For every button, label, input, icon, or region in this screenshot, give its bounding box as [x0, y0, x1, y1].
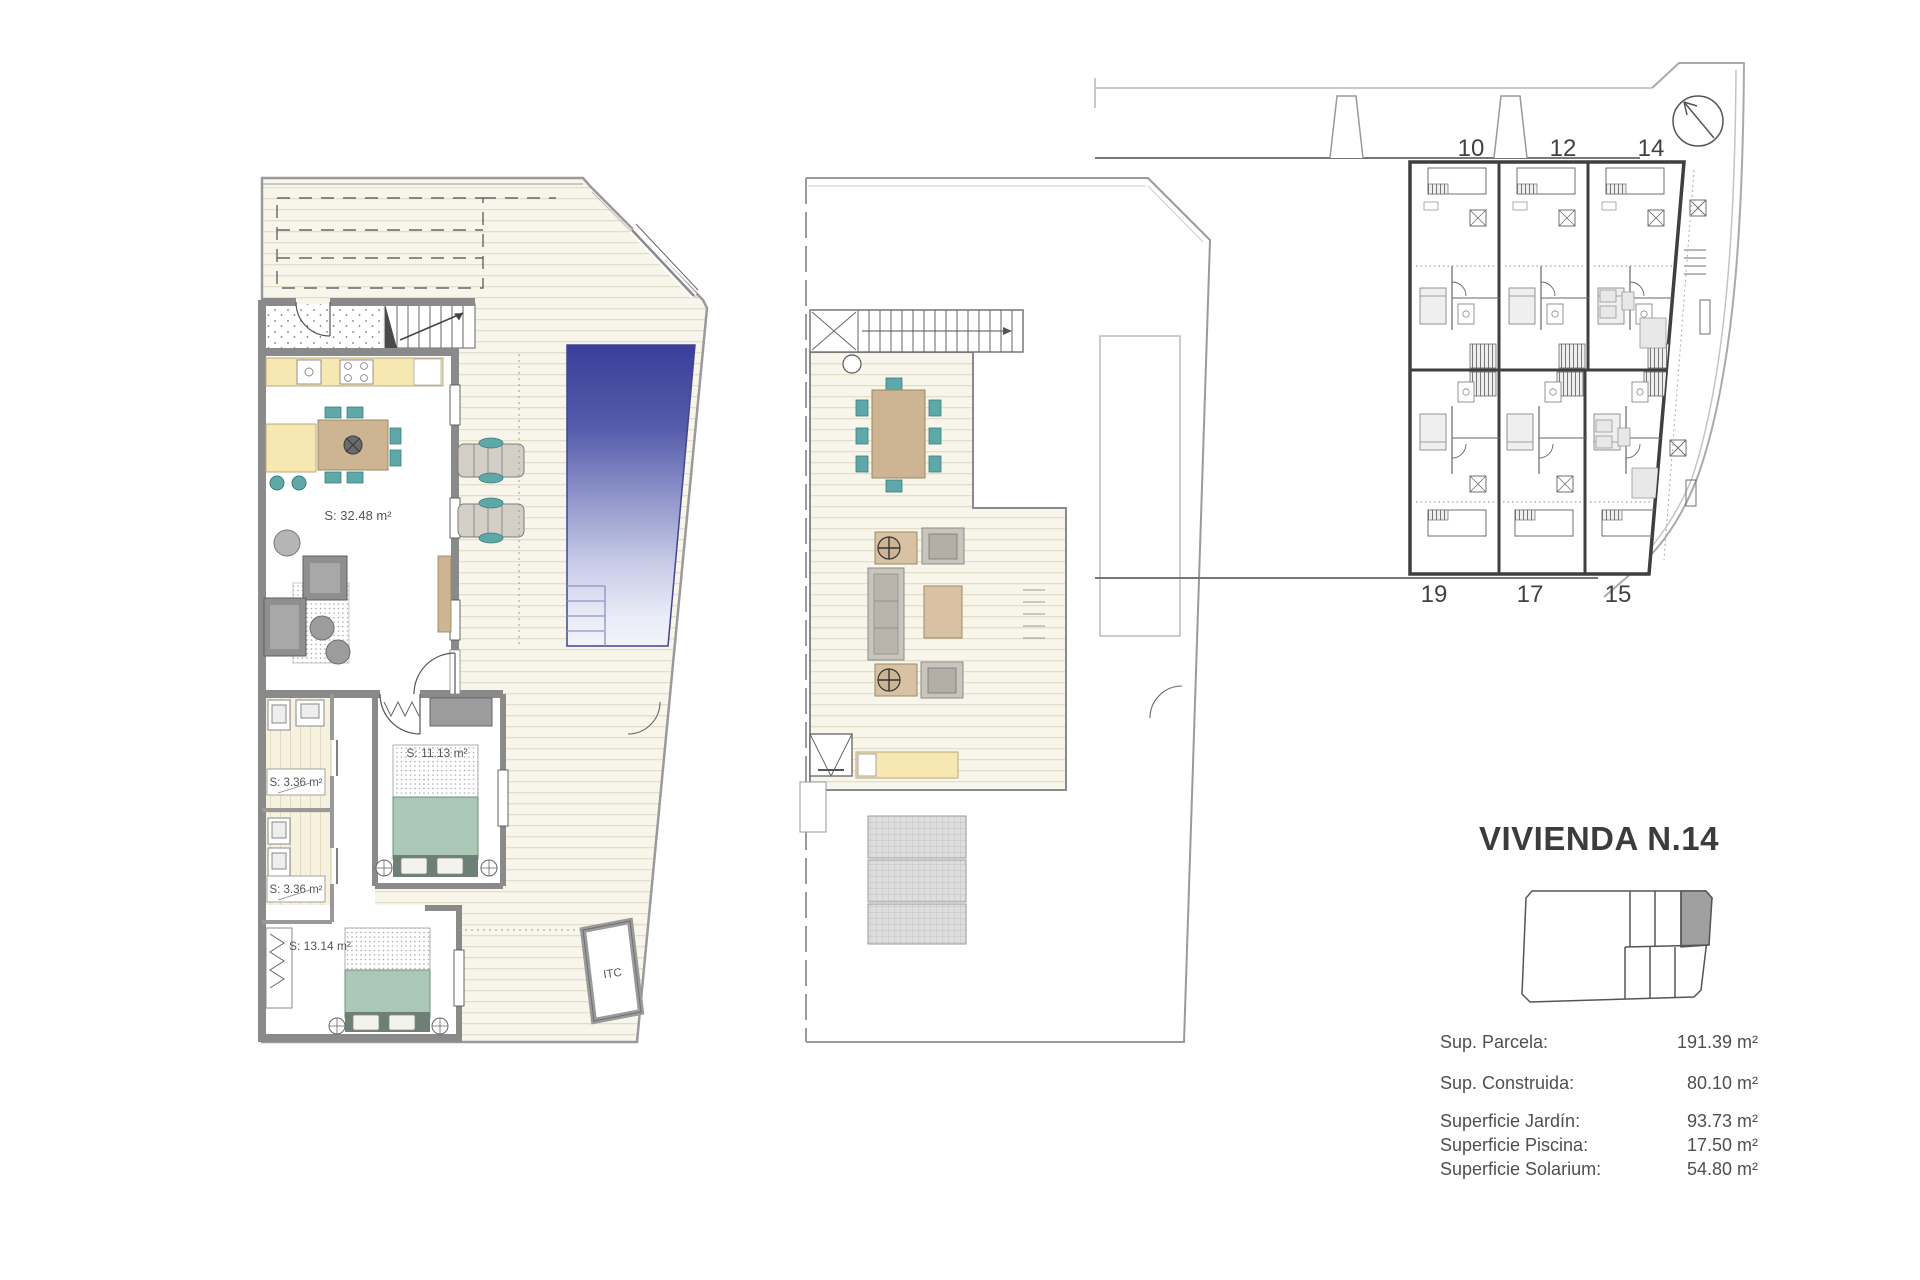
spec-value: 54.80 m²	[1687, 1157, 1758, 1181]
blueprint-page: ITC S: 32.48 m² S: 3.36 m² S: 3.36 m² S:…	[0, 0, 1920, 1280]
spec-value: 191.39 m²	[1677, 1030, 1758, 1054]
ground-floor-plan: ITC S: 32.48 m² S: 3.36 m² S: 3.36 m² S:…	[262, 178, 707, 1042]
spec-row-construida: Sup. Construida: 80.10 m²	[1440, 1071, 1758, 1095]
spec-value: 93.73 m²	[1687, 1109, 1758, 1133]
solar-pergola	[868, 816, 966, 944]
spec-value: 17.50 m²	[1687, 1133, 1758, 1157]
roof-bench	[856, 752, 958, 778]
spec-row-parcela: Sup. Parcela: 191.39 m²	[1440, 1030, 1758, 1054]
side-table	[274, 530, 300, 556]
stool	[292, 476, 306, 490]
stove	[340, 360, 373, 384]
bath1-label: S: 3.36 m²	[267, 769, 325, 795]
entry-stairs	[385, 304, 475, 348]
living-area-label: S: 32.48 m²	[324, 508, 392, 523]
itc-room: ITC	[583, 921, 641, 1021]
unit-number-17: 17	[1517, 581, 1544, 608]
compass-icon	[1673, 96, 1723, 146]
unit-number-14: 14	[1638, 135, 1665, 162]
spec-list: Sup. Parcela: 191.39 m² Sup. Construida:…	[1440, 1030, 1758, 1181]
bedroom2-area-label: S: 13.14 m²	[289, 939, 351, 953]
spec-row-piscina: Superficie Piscina: 17.50 m²	[1440, 1133, 1758, 1157]
spec-label: Sup. Parcela:	[1440, 1030, 1548, 1054]
kitchen-island	[266, 424, 316, 472]
roof-shower	[810, 734, 852, 776]
bedroom1-area-label: S: 11.13 m²	[406, 746, 467, 760]
building-block	[1410, 162, 1684, 574]
unit-number-12: 12	[1550, 135, 1577, 162]
unit-number-19: 19	[1421, 581, 1448, 608]
hallway	[332, 694, 375, 922]
sideboard	[438, 556, 451, 632]
sink	[297, 360, 321, 384]
coffee-table	[924, 586, 962, 638]
spec-row-solarium: Superficie Solarium: 54.80 m²	[1440, 1157, 1758, 1181]
spec-label: Superficie Solarium:	[1440, 1157, 1601, 1181]
spec-label: Sup. Construida:	[1440, 1071, 1574, 1095]
closet-1	[430, 698, 492, 726]
spec-label: Superficie Jardín:	[1440, 1109, 1580, 1133]
unit-number-10: 10	[1458, 135, 1485, 162]
info-panel: VIVIENDA N.14 Sup. Parcela: 191.39 m² Su…	[1440, 820, 1758, 1181]
unit-number-15: 15	[1605, 581, 1632, 608]
unit-title: VIVIENDA N.14	[1440, 820, 1758, 858]
solarium-plan	[800, 178, 1210, 1042]
stool	[270, 476, 284, 490]
bath2-label: S: 3.36 m²	[267, 876, 325, 902]
itc-label: ITC	[603, 967, 623, 981]
spec-row-jardin: Superficie Jardín: 93.73 m²	[1440, 1109, 1758, 1133]
spec-label: Superficie Piscina:	[1440, 1133, 1588, 1157]
spec-value: 80.10 m²	[1687, 1071, 1758, 1095]
